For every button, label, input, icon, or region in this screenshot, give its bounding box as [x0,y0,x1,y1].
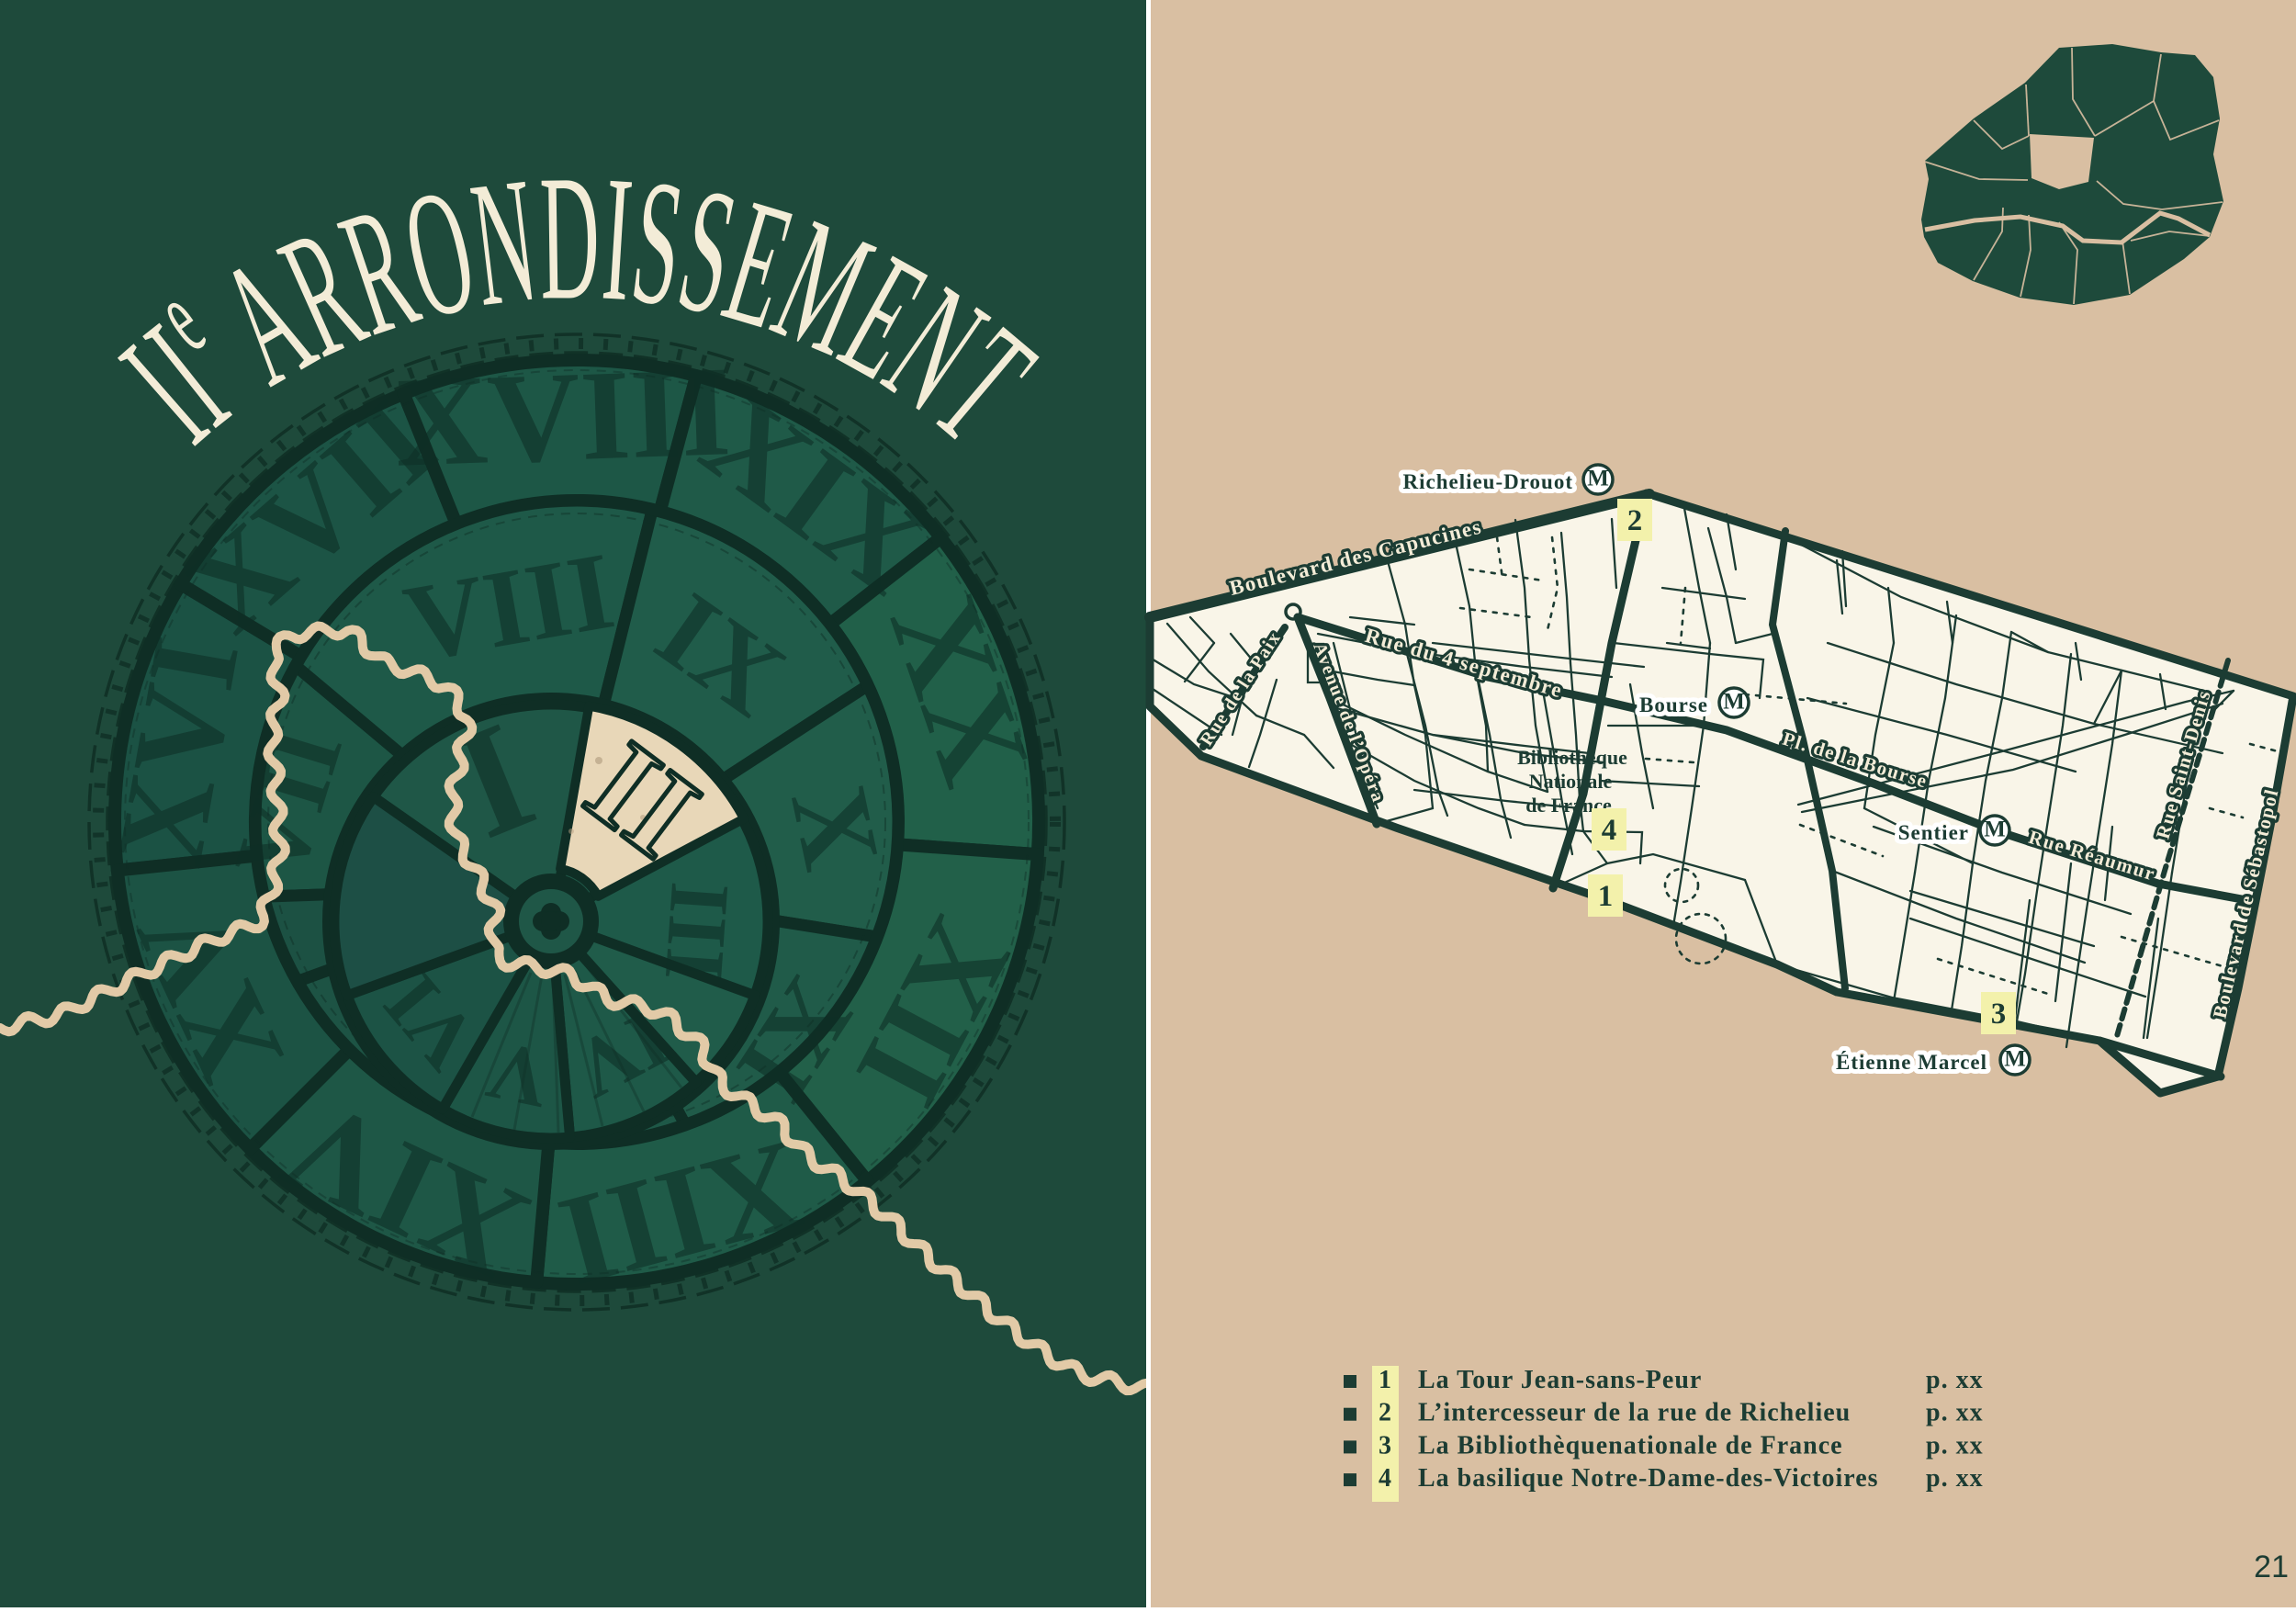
svg-text:La basilique Notre-Dame-des-Vi: La basilique Notre-Dame-des-Victoires [1418,1464,1879,1493]
svg-text:La Tour Jean-sans-Peur: La Tour Jean-sans-Peur [1418,1366,1702,1394]
svg-text:D: D [538,138,601,337]
svg-text:Sentier: Sentier [1898,821,1969,844]
svg-text:M: M [2004,1047,2026,1072]
svg-text:1: 1 [1598,880,1614,913]
svg-text:M: M [1587,467,1609,491]
svg-text:XVIII: XVIII [392,340,733,494]
svg-text:21: 21 [2254,1550,2289,1584]
svg-text:3: 3 [1991,998,2007,1031]
svg-text:Richelieu-Drouot: Richelieu-Drouot [1402,470,1573,493]
svg-text:La Bibliothèquenationale de Fr: La Bibliothèquenationale de France [1418,1431,1843,1460]
svg-text:4: 4 [1379,1464,1391,1493]
svg-text:4: 4 [1602,814,1617,847]
svg-text:p. xx: p. xx [1926,1366,1984,1394]
svg-text:L’intercesseur de la rue de Ri: L’intercesseur de la rue de Richelieu [1418,1399,1851,1427]
svg-text:III: III [647,879,748,984]
svg-text:Bourse: Bourse [1639,693,1708,716]
svg-text:1: 1 [1379,1366,1391,1394]
svg-text:p. xx: p. xx [1926,1431,1984,1460]
svg-text:2: 2 [1379,1399,1391,1427]
svg-text:M: M [1723,690,1745,715]
svg-text:3: 3 [1379,1431,1391,1460]
svg-text:Nationale: Nationale [1529,770,1613,793]
svg-text:Bibliothèque: Bibliothèque [1517,746,1627,769]
svg-text:Étienne Marcel: Étienne Marcel [1836,1051,1987,1074]
svg-text:2: 2 [1627,504,1643,537]
svg-text:p. xx: p. xx [1926,1464,1984,1493]
svg-text:p. xx: p. xx [1926,1399,1984,1427]
svg-text:M: M [1984,817,2006,842]
